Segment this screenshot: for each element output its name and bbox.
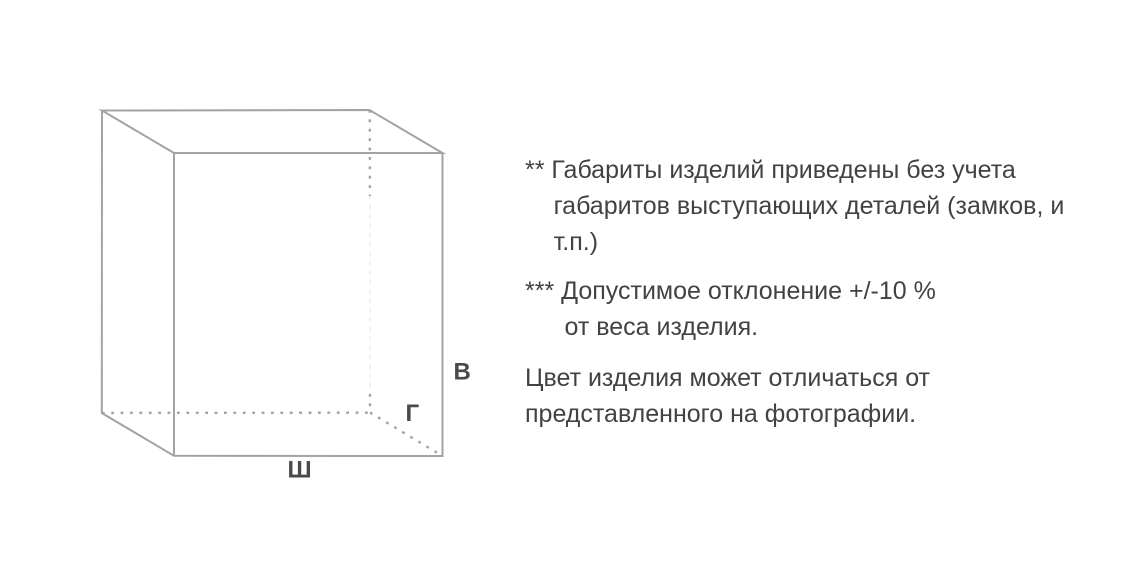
svg-text:В: В [454,359,471,386]
svg-text:Ш: Ш [288,457,312,484]
svg-text:Г: Г [406,400,420,427]
